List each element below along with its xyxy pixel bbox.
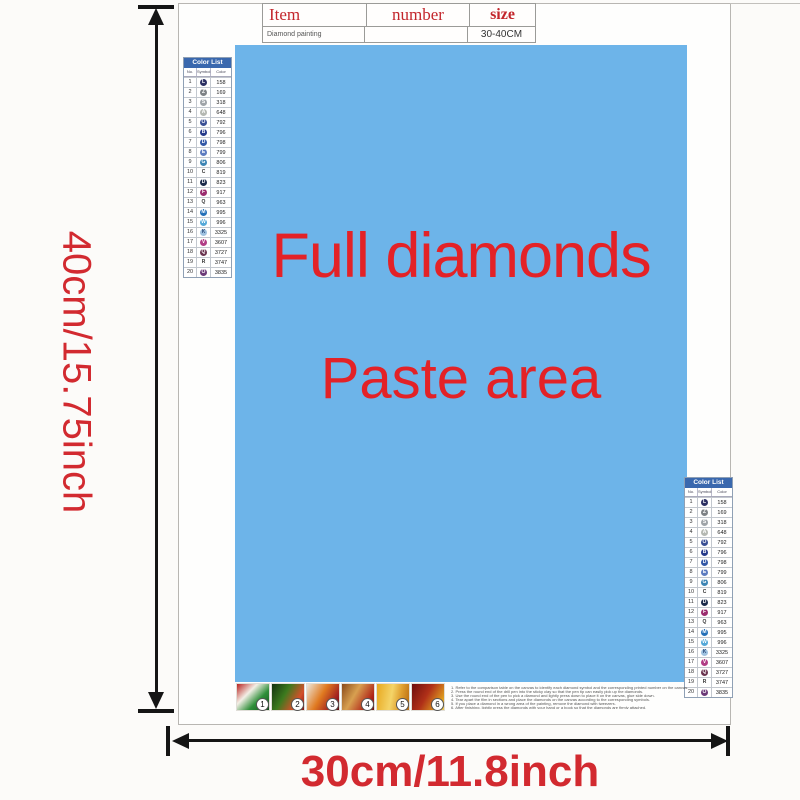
- horizontal-dimension-line: [187, 739, 713, 742]
- dmc-code: 806: [712, 580, 732, 586]
- row-number: 4: [685, 528, 698, 537]
- color-list-left: Color List No. Symbol Color 1 L 158 2 Z …: [183, 57, 232, 278]
- instruction-step-photos: 1 2 3 4 5 6: [236, 683, 445, 711]
- dmc-code: 3325: [211, 230, 231, 236]
- dmc-code: 796: [712, 550, 732, 556]
- color-list-row: 17 V 3607: [685, 657, 732, 667]
- symbol-cell: K: [698, 648, 712, 657]
- row-number: 9: [685, 578, 698, 587]
- row-number: 10: [685, 588, 698, 597]
- color-list-row: 6 B 796: [184, 127, 231, 137]
- diamond-symbol: Z: [200, 89, 207, 96]
- row-number: 2: [184, 88, 197, 97]
- symbol-cell: S: [698, 518, 712, 527]
- step-photo: 4: [341, 683, 375, 711]
- symbol-cell: M: [698, 628, 712, 637]
- step-number-badge: 1: [256, 698, 269, 711]
- dmc-code: 648: [211, 110, 231, 116]
- row-number: 5: [685, 538, 698, 547]
- row-number: 12: [184, 188, 197, 197]
- color-list-row: 19 R 3747: [184, 257, 231, 267]
- step-photo: 1: [236, 683, 270, 711]
- diamond-symbol: M: [701, 629, 708, 636]
- symbol-cell: D: [698, 598, 712, 607]
- dmc-code: 3607: [712, 660, 732, 666]
- color-list-title: Color List: [184, 58, 231, 68]
- diamond-symbol: B: [200, 129, 207, 136]
- symbol-cell: A: [197, 108, 211, 117]
- row-number: 7: [184, 138, 197, 147]
- dmc-code: 3727: [712, 670, 732, 676]
- diamond-symbol: O: [200, 269, 207, 276]
- symbol-cell: R: [197, 258, 211, 267]
- diamond-symbol: R: [701, 679, 708, 686]
- dmc-code: 996: [211, 220, 231, 226]
- color-list-row: 14 M 995: [184, 207, 231, 217]
- row-number: 18: [184, 248, 197, 257]
- color-list-row: 15 W 996: [184, 217, 231, 227]
- color-list-row: 3 S 318: [685, 517, 732, 527]
- symbol-cell: G: [197, 158, 211, 167]
- color-list-row: 2 Z 169: [685, 507, 732, 517]
- dmc-code: 823: [712, 600, 732, 606]
- arrow-down-icon: [148, 692, 164, 709]
- diamond-symbol: W: [200, 219, 207, 226]
- color-list-row: 9 G 806: [685, 577, 732, 587]
- diamond-symbol: S: [701, 519, 708, 526]
- symbol-cell: Q: [197, 248, 211, 257]
- diamond-symbol: Q: [200, 199, 207, 206]
- dmc-code: 648: [712, 530, 732, 536]
- dmc-code: 917: [712, 610, 732, 616]
- diamond-symbol: A: [701, 529, 708, 536]
- row-number: 1: [184, 78, 197, 87]
- symbol-cell: C: [197, 168, 211, 177]
- color-list-row: 1 L 158: [184, 77, 231, 87]
- color-list-row: 16 K 3325: [685, 647, 732, 657]
- symbol-cell: Q: [197, 198, 211, 207]
- row-number: 9: [184, 158, 197, 167]
- dmc-code: 796: [211, 130, 231, 136]
- diamond-symbol: D: [200, 139, 207, 146]
- diamond-symbol: O: [701, 689, 708, 696]
- sheet-top-edge-line: [730, 3, 800, 4]
- symbol-cell: D: [698, 558, 712, 567]
- number-header-cell: number: [367, 4, 470, 26]
- item-value-cell: Diamond painting: [263, 27, 365, 42]
- symbol-cell: Q: [698, 618, 712, 627]
- symbol-cell: G: [698, 578, 712, 587]
- dmc-code: 819: [211, 170, 231, 176]
- row-number: 14: [184, 208, 197, 217]
- dmc-code: 996: [712, 640, 732, 646]
- symbol-cell: F: [197, 188, 211, 197]
- row-number: 16: [685, 648, 698, 657]
- diamond-symbol: M: [200, 209, 207, 216]
- diamond-symbol: Z: [701, 509, 708, 516]
- diamond-symbol: O: [200, 119, 207, 126]
- arrow-up-icon: [148, 8, 164, 25]
- dmc-code: 3835: [712, 690, 732, 696]
- color-list-row: 15 W 996: [685, 637, 732, 647]
- instruction-line: 6. After finishing, lightly press the di…: [451, 706, 695, 710]
- symbol-cell: E: [197, 148, 211, 157]
- color-list-row: 5 O 792: [184, 117, 231, 127]
- dmc-code: 792: [712, 540, 732, 546]
- item-header-cell: Item: [263, 4, 367, 26]
- dmc-code: 823: [211, 180, 231, 186]
- step-number-badge: 6: [431, 698, 444, 711]
- dmc-code: 792: [211, 120, 231, 126]
- color-list-row: 8 E 799: [184, 147, 231, 157]
- symbol-cell: L: [197, 78, 211, 87]
- dmc-code: 3727: [211, 250, 231, 256]
- symbol-cell: K: [197, 228, 211, 237]
- dmc-code: 158: [712, 500, 732, 506]
- diamond-symbol: E: [701, 569, 708, 576]
- row-number: 15: [685, 638, 698, 647]
- diamond-symbol: B: [701, 549, 708, 556]
- color-list-right: Color List No. Symbol Color 1 L 158 2 Z …: [684, 477, 733, 698]
- diamond-symbol: V: [701, 659, 708, 666]
- color-list-row: 13 Q 963: [685, 617, 732, 627]
- diamond-symbol: D: [701, 559, 708, 566]
- dmc-code: 995: [712, 630, 732, 636]
- row-number: 20: [184, 268, 197, 277]
- color-list-row: 20 O 3835: [184, 267, 231, 277]
- diamond-symbol: D: [200, 179, 207, 186]
- diamond-symbol: L: [200, 79, 207, 86]
- row-number: 8: [685, 568, 698, 577]
- symbol-cell: W: [698, 638, 712, 647]
- color-list-row: 7 D 798: [685, 557, 732, 567]
- color-list-row: 11 D 823: [685, 597, 732, 607]
- color-list-row: 16 K 3325: [184, 227, 231, 237]
- height-dimension-label: 40cm/15.75inch: [54, 231, 99, 513]
- diamond-symbol: K: [200, 229, 207, 236]
- symbol-cell: V: [698, 658, 712, 667]
- dmc-code: 158: [211, 80, 231, 86]
- paste-area-title-line2: Paste area: [235, 345, 687, 412]
- color-list-row: 14 M 995: [685, 627, 732, 637]
- row-number: 17: [685, 658, 698, 667]
- symbol-cell: O: [698, 538, 712, 547]
- dmc-code: 798: [712, 560, 732, 566]
- dmc-code: 917: [211, 190, 231, 196]
- step-photo: 5: [376, 683, 410, 711]
- vertical-dimension-bottom-cap: [138, 709, 174, 713]
- dmc-code: 995: [211, 210, 231, 216]
- dmc-code: 318: [211, 100, 231, 106]
- symbol-cell: O: [197, 118, 211, 127]
- symbol-cell: Q: [698, 668, 712, 677]
- diamond-symbol: V: [200, 239, 207, 246]
- diamond-symbol: F: [200, 189, 207, 196]
- row-number: 10: [184, 168, 197, 177]
- symbol-cell: C: [698, 588, 712, 597]
- size-value-cell: 30-40CM: [468, 27, 535, 42]
- color-list-row: 4 A 648: [685, 527, 732, 537]
- diamond-symbol: S: [200, 99, 207, 106]
- item-info-data-row: Diamond painting 30-40CM: [263, 27, 535, 42]
- dmc-code: 3747: [712, 680, 732, 686]
- dmc-code: 819: [712, 590, 732, 596]
- diamond-symbol: D: [701, 599, 708, 606]
- symbol-cell: B: [698, 548, 712, 557]
- diamond-symbol: C: [701, 589, 708, 596]
- row-number: 11: [685, 598, 698, 607]
- dmc-code: 3747: [211, 260, 231, 266]
- step-number-badge: 5: [396, 698, 409, 711]
- step-number-badge: 2: [291, 698, 304, 711]
- row-number: 6: [685, 548, 698, 557]
- diamond-symbol: Q: [200, 249, 207, 256]
- step-number-badge: 4: [361, 698, 374, 711]
- dmc-code: 3325: [712, 650, 732, 656]
- step-photo: 2: [271, 683, 305, 711]
- symbol-cell: M: [197, 208, 211, 217]
- dmc-code: 3835: [211, 270, 231, 276]
- color-list-row: 11 D 823: [184, 177, 231, 187]
- symbol-cell: B: [197, 128, 211, 137]
- dmc-code: 799: [712, 570, 732, 576]
- dmc-code: 963: [211, 200, 231, 206]
- horizontal-dimension-left-cap: [166, 726, 170, 756]
- color-list-row: 6 B 796: [685, 547, 732, 557]
- paste-area-title-line1: Full diamonds: [235, 220, 687, 292]
- color-list-row: 13 Q 963: [184, 197, 231, 207]
- color-list-row: 4 A 648: [184, 107, 231, 117]
- column-color: Color: [712, 488, 732, 496]
- number-value-cell: [365, 27, 468, 42]
- symbol-cell: W: [197, 218, 211, 227]
- row-number: 11: [184, 178, 197, 187]
- diamond-symbol: O: [701, 539, 708, 546]
- symbol-cell: R: [698, 678, 712, 687]
- row-number: 16: [184, 228, 197, 237]
- color-list-row: 10 C 819: [184, 167, 231, 177]
- symbol-cell: L: [698, 498, 712, 507]
- row-number: 15: [184, 218, 197, 227]
- dmc-code: 3607: [211, 240, 231, 246]
- row-number: 3: [184, 98, 197, 107]
- diamond-symbol: G: [200, 159, 207, 166]
- color-list-title: Color List: [685, 478, 732, 488]
- dmc-code: 963: [712, 620, 732, 626]
- symbol-cell: D: [197, 178, 211, 187]
- row-number: 13: [685, 618, 698, 627]
- diamond-symbol: F: [701, 609, 708, 616]
- color-list-row: 3 S 318: [184, 97, 231, 107]
- step-photo: 6: [411, 683, 445, 711]
- color-list-row: 10 C 819: [685, 587, 732, 597]
- color-list-column-headers: No. Symbol Color: [184, 68, 231, 77]
- dmc-code: 169: [211, 90, 231, 96]
- row-number: 3: [685, 518, 698, 527]
- row-number: 4: [184, 108, 197, 117]
- color-list-row: 8 E 799: [685, 567, 732, 577]
- column-no: No.: [685, 488, 698, 496]
- color-list-row: 12 F 917: [685, 607, 732, 617]
- diamond-symbol: Q: [701, 619, 708, 626]
- symbol-cell: Z: [698, 508, 712, 517]
- diamond-symbol: A: [200, 109, 207, 116]
- vertical-dimension-line: [155, 24, 158, 694]
- color-list-row: 18 Q 3727: [184, 247, 231, 257]
- color-list-row: 7 D 798: [184, 137, 231, 147]
- row-number: 1: [685, 498, 698, 507]
- symbol-cell: O: [698, 688, 712, 697]
- dmc-code: 806: [211, 160, 231, 166]
- color-list-row: 2 Z 169: [184, 87, 231, 97]
- color-list-row: 1 L 158: [685, 497, 732, 507]
- row-number: 17: [184, 238, 197, 247]
- dmc-code: 318: [712, 520, 732, 526]
- color-list-row: 9 G 806: [184, 157, 231, 167]
- color-list-row: 12 F 917: [184, 187, 231, 197]
- symbol-cell: E: [698, 568, 712, 577]
- symbol-cell: S: [197, 98, 211, 107]
- width-dimension-label: 30cm/11.8inch: [185, 747, 715, 797]
- row-number: 8: [184, 148, 197, 157]
- row-number: 5: [184, 118, 197, 127]
- instruction-text-block: 1. Refer to the comparison table on the …: [451, 686, 695, 709]
- color-list-column-headers: No. Symbol Color: [685, 488, 732, 497]
- size-header-cell: size: [470, 4, 535, 26]
- diamond-symbol: R: [200, 259, 207, 266]
- horizontal-dimension-right-cap: [726, 726, 730, 756]
- row-number: 14: [685, 628, 698, 637]
- column-no: No.: [184, 68, 197, 76]
- row-number: 2: [685, 508, 698, 517]
- row-number: 19: [184, 258, 197, 267]
- symbol-cell: O: [197, 268, 211, 277]
- dmc-code: 798: [211, 140, 231, 146]
- symbol-cell: D: [197, 138, 211, 147]
- diamond-symbol: W: [701, 639, 708, 646]
- item-info-table: Item number size Diamond painting 30-40C…: [262, 3, 536, 43]
- diamond-symbol: C: [200, 169, 207, 176]
- column-symbol: Symbol: [197, 68, 211, 76]
- dmc-code: 169: [712, 510, 732, 516]
- symbol-cell: Z: [197, 88, 211, 97]
- row-number: 13: [184, 198, 197, 207]
- row-number: 6: [184, 128, 197, 137]
- diamond-symbol: Q: [701, 669, 708, 676]
- symbol-cell: A: [698, 528, 712, 537]
- step-number-badge: 3: [326, 698, 339, 711]
- row-number: 18: [685, 668, 698, 677]
- color-list-row: 18 Q 3727: [685, 667, 732, 677]
- color-list-row: 5 O 792: [685, 537, 732, 547]
- diamond-symbol: K: [701, 649, 708, 656]
- symbol-cell: F: [698, 608, 712, 617]
- color-list-row: 17 V 3607: [184, 237, 231, 247]
- symbol-cell: V: [197, 238, 211, 247]
- item-info-header-row: Item number size: [263, 4, 535, 27]
- column-color: Color: [211, 68, 231, 76]
- diamond-symbol: L: [701, 499, 708, 506]
- dmc-code: 799: [211, 150, 231, 156]
- step-photo: 3: [306, 683, 340, 711]
- diamond-symbol: G: [701, 579, 708, 586]
- row-number: 12: [685, 608, 698, 617]
- row-number: 7: [685, 558, 698, 567]
- column-symbol: Symbol: [698, 488, 712, 496]
- diamond-symbol: E: [200, 149, 207, 156]
